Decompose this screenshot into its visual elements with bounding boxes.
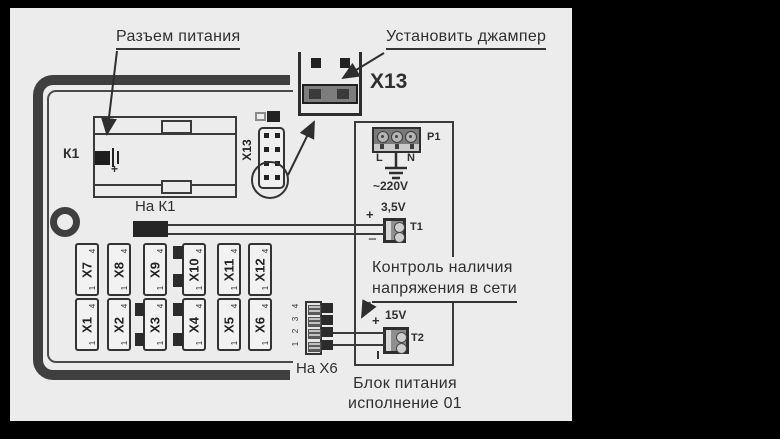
k1-capacitor-body — [95, 151, 110, 165]
connector-x10: 4X101 — [182, 243, 206, 296]
pin-number-top: 4 — [89, 304, 97, 308]
pin-number-bottom: 1 — [231, 286, 239, 290]
t2-designator: T2 — [411, 332, 424, 344]
relay-k1-footprint — [93, 116, 237, 198]
psu-caption: Блок питанияисполнение 01 — [338, 374, 472, 414]
screenshot-stage: + К1 На К1 Х13 X13 4X71 4X81 4X91 4X101 … — [0, 0, 780, 439]
pin-number-top: 4 — [196, 249, 204, 253]
connector-x5: 4X51 — [217, 298, 241, 351]
connector-label: X8 — [112, 262, 127, 278]
connector-x12: 4X121 — [248, 243, 272, 296]
na-x6-label: На Х6 — [296, 360, 338, 377]
connector-x11: 4X111 — [217, 243, 241, 296]
header-pad — [322, 327, 333, 337]
connector-x2: 4X21 — [107, 298, 131, 351]
mounting-hole — [50, 207, 80, 237]
x13-pin — [275, 147, 280, 152]
pin-number-top: 4 — [157, 304, 165, 308]
relay-tab-top — [161, 120, 192, 134]
header-pin-number: 3 — [292, 317, 300, 321]
p1-pin — [395, 144, 399, 149]
voltage-monitor-note: Контроль наличиянапряжения в сети — [372, 257, 517, 303]
x13-pin — [264, 147, 269, 152]
connector-label: X10 — [187, 258, 202, 281]
smd-chip — [135, 333, 144, 346]
p1-screw — [405, 131, 417, 143]
smd-outline — [255, 112, 266, 121]
t2-minus-tick — [377, 351, 379, 359]
na-k1-pad — [133, 221, 168, 237]
pin-number-bottom: 1 — [89, 286, 97, 290]
header-pad — [322, 340, 333, 350]
t1-strip — [386, 221, 391, 240]
terminal-p1 — [372, 127, 421, 153]
x13-pin — [264, 133, 269, 138]
smd-chip — [173, 246, 183, 259]
header-pin — [308, 305, 321, 315]
connector-x3: 4X31 — [143, 298, 167, 351]
p1-pin — [410, 144, 414, 149]
connector-x9: 4X91 — [143, 243, 167, 296]
t1-hole — [394, 232, 405, 243]
connector-label: X11 — [222, 258, 237, 280]
t2-hole — [396, 332, 407, 343]
jumper-cap-contact — [309, 89, 321, 99]
install-jumper-label: Установить джампер — [386, 28, 546, 50]
jumper-cap — [302, 84, 358, 104]
terminal-t1 — [383, 218, 406, 243]
connector-label: X4 — [187, 317, 202, 333]
na-k1-label: На К1 — [135, 198, 175, 215]
pin-number-top: 4 — [157, 249, 165, 253]
pin-number-bottom: 1 — [157, 286, 165, 290]
p1-screw — [391, 131, 403, 143]
pin-number-top: 4 — [262, 249, 270, 253]
x13-pin — [275, 133, 280, 138]
header-pad — [322, 315, 333, 325]
header-pad — [322, 303, 333, 313]
voltage-monitor-line1: Контроль наличия — [372, 257, 517, 278]
connector-x8: 4X81 — [107, 243, 131, 296]
connector-label: X1 — [80, 317, 95, 333]
t2-strip — [386, 330, 391, 351]
pin-number-top: 4 — [231, 304, 239, 308]
header-pin — [308, 342, 321, 352]
connector-label: X7 — [80, 262, 95, 278]
pin-number-top: 4 — [89, 249, 97, 253]
t2-voltage-label: 15V — [385, 308, 406, 322]
k1-designator: К1 — [63, 145, 79, 161]
connector-label: X3 — [148, 317, 163, 333]
pin-number-top: 4 — [121, 249, 129, 253]
connector-label: X2 — [112, 317, 127, 333]
t1-plus-mark: + — [366, 207, 374, 222]
x13-zoom-circle — [251, 161, 289, 199]
smd-chip — [173, 333, 183, 346]
terminal-t2 — [383, 327, 409, 354]
power-connector-label: Разъем питания — [116, 28, 240, 50]
jumper-pad — [340, 58, 350, 68]
t1-designator: T1 — [410, 221, 423, 233]
smd-chip — [173, 303, 183, 316]
line-l-label: L — [376, 152, 383, 164]
psu-caption-line2: исполнение 01 — [338, 394, 472, 414]
smd-chip — [173, 274, 183, 287]
header-pin-number: 4 — [292, 304, 300, 308]
pin-number-top: 4 — [231, 249, 239, 253]
header-pin-number: 1 — [292, 342, 300, 346]
connector-label: X12 — [253, 258, 268, 281]
x6-pin-header — [305, 301, 322, 355]
p1-screw — [377, 131, 389, 143]
pin-number-bottom: 1 — [157, 341, 165, 345]
mains-voltage-label: ~220V — [373, 179, 408, 193]
smd-chip — [135, 303, 144, 316]
line-n-label: N — [407, 152, 415, 164]
pin-number-bottom: 1 — [89, 341, 97, 345]
t2-hole — [396, 343, 407, 354]
header-pin — [308, 329, 321, 339]
pin-number-bottom: 1 — [196, 341, 204, 345]
connector-label: X9 — [148, 262, 163, 278]
pin-number-bottom: 1 — [262, 341, 270, 345]
connector-x7: 4X71 — [75, 243, 99, 296]
header-pin — [308, 317, 321, 327]
connector-x6: 4X61 — [248, 298, 272, 351]
connector-x4: 4X41 — [182, 298, 206, 351]
pin-number-bottom: 1 — [262, 286, 270, 290]
p1-designator: P1 — [427, 131, 440, 143]
t1-voltage-label: 3,5V — [381, 200, 406, 214]
t1-minus-mark: − — [368, 231, 377, 248]
jumper-pad — [311, 58, 321, 68]
pin-number-bottom: 1 — [196, 286, 204, 290]
relay-tab-bottom — [161, 180, 192, 194]
k1-plus-mark: + — [111, 162, 118, 176]
connector-label: X6 — [253, 317, 268, 333]
x13-big-label: X13 — [370, 70, 407, 94]
smd-chip — [267, 111, 280, 122]
connector-x1: 4X11 — [75, 298, 99, 351]
t2-plus-mark: + — [372, 313, 380, 328]
psu-caption-line1: Блок питания — [338, 374, 472, 394]
pin-number-bottom: 1 — [121, 341, 129, 345]
pin-number-top: 4 — [121, 304, 129, 308]
pin-number-top: 4 — [262, 304, 270, 308]
pin-number-bottom: 1 — [231, 341, 239, 345]
voltage-monitor-line2: напряжения в сети — [372, 278, 517, 303]
connector-label: X5 — [222, 317, 237, 333]
p1-pin — [380, 144, 384, 149]
x13-connector-designator: Х13 — [240, 130, 254, 170]
header-pin-number: 2 — [292, 329, 300, 333]
pin-number-top: 4 — [196, 304, 204, 308]
jumper-cap-contact — [337, 89, 349, 99]
pin-number-bottom: 1 — [121, 286, 129, 290]
